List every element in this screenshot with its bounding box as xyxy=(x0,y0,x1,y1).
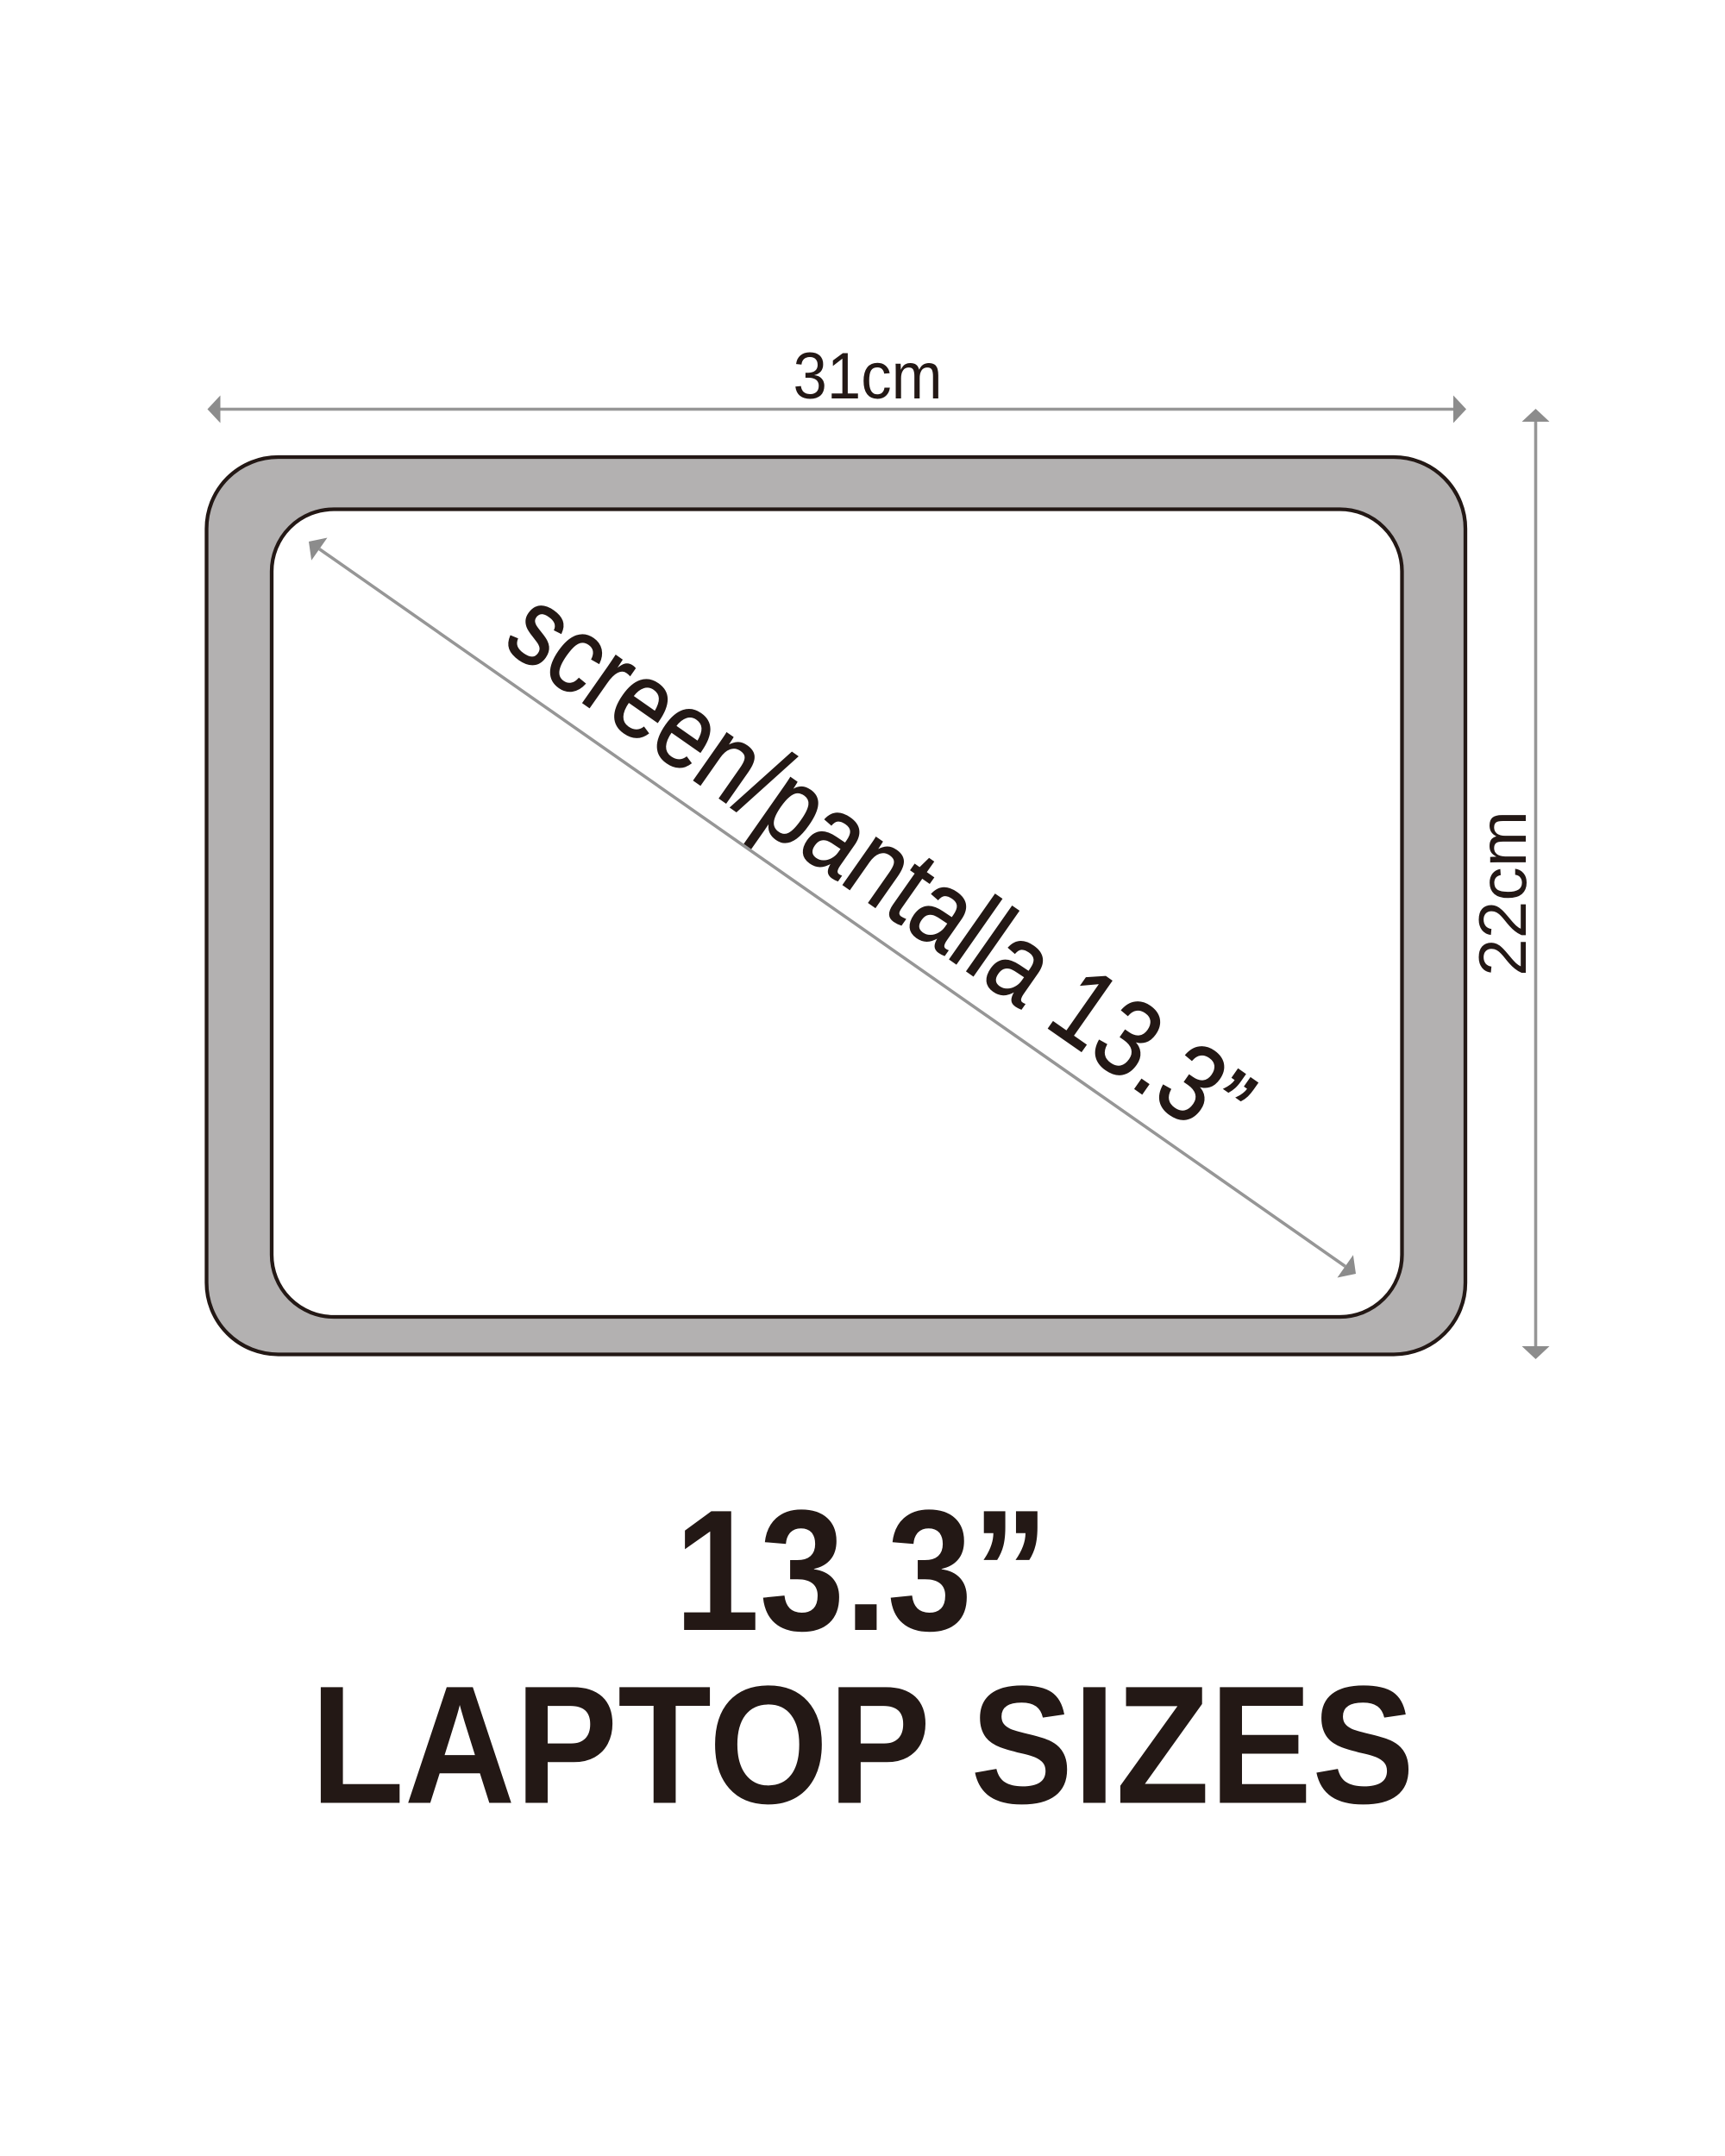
svg-text:LAPTOP SIZES: LAPTOP SIZES xyxy=(310,1651,1414,1839)
svg-text:31cm: 31cm xyxy=(793,340,943,413)
svg-text:22cm: 22cm xyxy=(1465,811,1540,976)
svg-text:13.3”: 13.3” xyxy=(674,1475,1049,1667)
